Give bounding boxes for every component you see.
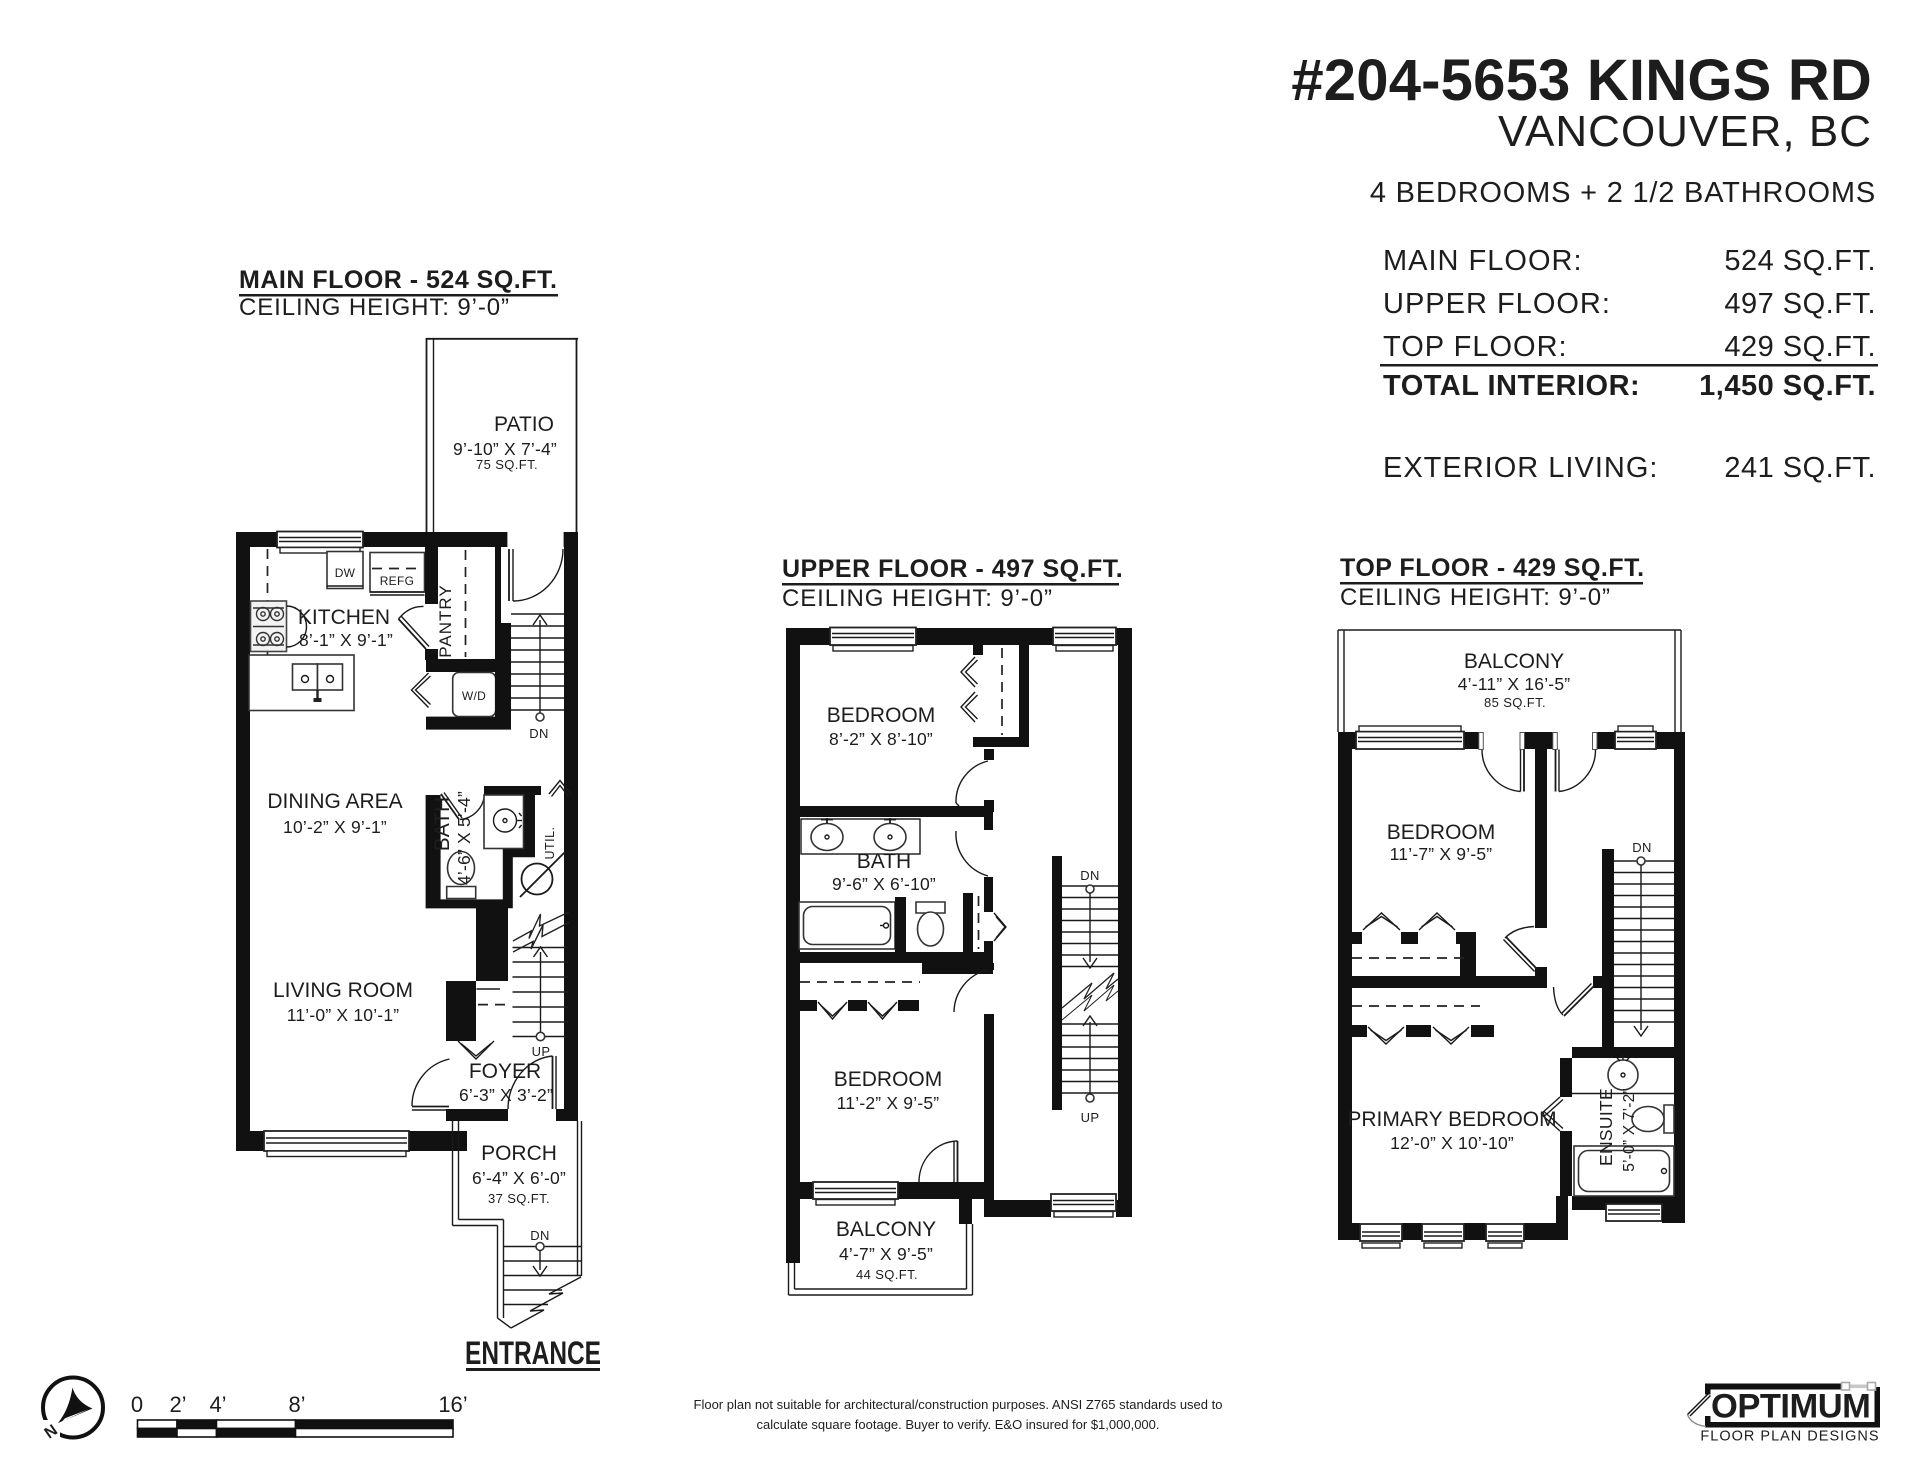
svg-text:UPPER FLOOR - 497 SQ.FT.: UPPER FLOOR - 497 SQ.FT. bbox=[782, 555, 1123, 583]
svg-text:DN: DN bbox=[1080, 868, 1100, 883]
svg-text:0: 0 bbox=[131, 1392, 143, 1417]
svg-text:PORCH: PORCH bbox=[481, 1142, 557, 1165]
svg-text:241 SQ.FT.: 241 SQ.FT. bbox=[1724, 452, 1876, 484]
svg-text:UP: UP bbox=[1081, 1110, 1100, 1125]
svg-text:16’: 16’ bbox=[438, 1392, 467, 1417]
svg-text:DN: DN bbox=[529, 726, 549, 741]
svg-text:TOP FLOOR:: TOP FLOOR: bbox=[1383, 331, 1568, 363]
svg-text:85 SQ.FT.: 85 SQ.FT. bbox=[1484, 695, 1546, 710]
svg-text:Floor plan not suitable for ar: Floor plan not suitable for architectura… bbox=[694, 1397, 1223, 1412]
svg-text:12’-0” X 10’-10”: 12’-0” X 10’-10” bbox=[1390, 1133, 1514, 1153]
svg-text:9’-6” X 6’-10”: 9’-6” X 6’-10” bbox=[832, 874, 936, 894]
svg-text:11’-0” X 10’-1”: 11’-0” X 10’-1” bbox=[287, 1005, 400, 1025]
svg-text:1,450 SQ.FT.: 1,450 SQ.FT. bbox=[1699, 370, 1876, 402]
svg-text:CEILING HEIGHT: 9’-0”: CEILING HEIGHT: 9’-0” bbox=[782, 585, 1053, 612]
svg-text:BEDROOM: BEDROOM bbox=[834, 1068, 943, 1091]
svg-text:TOTAL INTERIOR:: TOTAL INTERIOR: bbox=[1383, 370, 1640, 402]
svg-text:DN: DN bbox=[530, 1228, 550, 1243]
svg-text:11’-2” X 9’-5”: 11’-2” X 9’-5” bbox=[837, 1093, 940, 1113]
svg-text:4’-6” X 5’-4”: 4’-6” X 5’-4” bbox=[454, 791, 474, 885]
svg-text:DW: DW bbox=[335, 566, 356, 580]
svg-text:DN: DN bbox=[1632, 840, 1652, 855]
svg-text:44 SQ.FT.: 44 SQ.FT. bbox=[856, 1267, 918, 1282]
svg-text:4’: 4’ bbox=[209, 1392, 226, 1417]
svg-text:5’-0” X 7’-2”: 5’-0” X 7’-2” bbox=[1621, 1088, 1638, 1172]
svg-text:CEILING HEIGHT: 9’-0”: CEILING HEIGHT: 9’-0” bbox=[239, 294, 510, 321]
svg-text:6’-3” X 3’-2”: 6’-3” X 3’-2” bbox=[459, 1085, 553, 1105]
svg-text:BALCONY: BALCONY bbox=[836, 1218, 936, 1241]
svg-text:VANCOUVER, BC: VANCOUVER, BC bbox=[1498, 107, 1872, 156]
svg-text:75 SQ.FT.: 75 SQ.FT. bbox=[476, 457, 538, 472]
svg-text:6’-4” X 6’-0”: 6’-4” X 6’-0” bbox=[472, 1168, 566, 1188]
svg-text:9’-10” X 7’-4”: 9’-10” X 7’-4” bbox=[453, 439, 557, 459]
svg-text:4’-11” X 16’-5”: 4’-11” X 16’-5” bbox=[1458, 674, 1571, 694]
svg-text:10’-2” X 9’-1”: 10’-2” X 9’-1” bbox=[283, 817, 387, 837]
svg-text:PANTRY: PANTRY bbox=[436, 584, 455, 657]
svg-text:BEDROOM: BEDROOM bbox=[1387, 821, 1496, 844]
svg-text:TOP FLOOR - 429 SQ.FT.: TOP FLOOR - 429 SQ.FT. bbox=[1340, 554, 1645, 582]
svg-text:429 SQ.FT.: 429 SQ.FT. bbox=[1724, 331, 1876, 363]
svg-text:BATH: BATH bbox=[857, 850, 911, 873]
svg-text:UTIL.: UTIL. bbox=[543, 826, 557, 859]
svg-text:BATH: BATH bbox=[431, 797, 454, 851]
svg-text:OPTIMUM: OPTIMUM bbox=[1711, 1388, 1870, 1426]
svg-text:BEDROOM: BEDROOM bbox=[827, 704, 936, 727]
svg-text:497 SQ.FT.: 497 SQ.FT. bbox=[1724, 288, 1876, 320]
svg-text:BALCONY: BALCONY bbox=[1464, 650, 1564, 673]
svg-text:524 SQ.FT.: 524 SQ.FT. bbox=[1724, 245, 1876, 277]
svg-text:37 SQ.FT.: 37 SQ.FT. bbox=[488, 1191, 550, 1206]
svg-text:EXTERIOR LIVING:: EXTERIOR LIVING: bbox=[1383, 452, 1658, 484]
svg-text:PATIO: PATIO bbox=[494, 413, 554, 436]
svg-text:KITCHEN: KITCHEN bbox=[298, 606, 390, 629]
svg-text:8’-1” X 9’-1”: 8’-1” X 9’-1” bbox=[299, 630, 393, 650]
svg-text:REFG: REFG bbox=[380, 574, 415, 588]
svg-text:8’: 8’ bbox=[288, 1392, 305, 1417]
svg-text:#204-5653 KINGS RD: #204-5653 KINGS RD bbox=[1291, 48, 1872, 113]
svg-text:UPPER FLOOR:: UPPER FLOOR: bbox=[1383, 288, 1611, 320]
svg-text:DINING AREA: DINING AREA bbox=[267, 790, 402, 813]
svg-text:PRIMARY BEDROOM: PRIMARY BEDROOM bbox=[1347, 1108, 1556, 1131]
svg-text:ENSUITE: ENSUITE bbox=[1596, 1088, 1616, 1166]
svg-text:MAIN FLOOR:: MAIN FLOOR: bbox=[1383, 245, 1583, 277]
svg-text:CEILING HEIGHT: 9’-0”: CEILING HEIGHT: 9’-0” bbox=[1340, 584, 1611, 611]
svg-text:2’: 2’ bbox=[169, 1392, 186, 1417]
svg-text:4 BEDROOMS + 2 1/2 BATHROOMS: 4 BEDROOMS + 2 1/2 BATHROOMS bbox=[1370, 177, 1876, 209]
svg-text:11’-7” X 9’-5”: 11’-7” X 9’-5” bbox=[1390, 844, 1493, 864]
svg-text:8’-2” X 8’-10”: 8’-2” X 8’-10” bbox=[829, 729, 933, 749]
svg-text:W/D: W/D bbox=[462, 689, 486, 703]
svg-text:FLOOR PLAN DESIGNS: FLOOR PLAN DESIGNS bbox=[1700, 1429, 1879, 1445]
svg-text:ENTRANCE: ENTRANCE bbox=[465, 1335, 601, 1371]
svg-text:LIVING ROOM: LIVING ROOM bbox=[273, 979, 413, 1002]
svg-text:4’-7” X 9’-5”: 4’-7” X 9’-5” bbox=[839, 1244, 933, 1264]
svg-text:MAIN FLOOR - 524 SQ.FT.: MAIN FLOOR - 524 SQ.FT. bbox=[239, 266, 557, 294]
svg-text:calculate square footage. Buye: calculate square footage. Buyer to verif… bbox=[757, 1417, 1160, 1432]
